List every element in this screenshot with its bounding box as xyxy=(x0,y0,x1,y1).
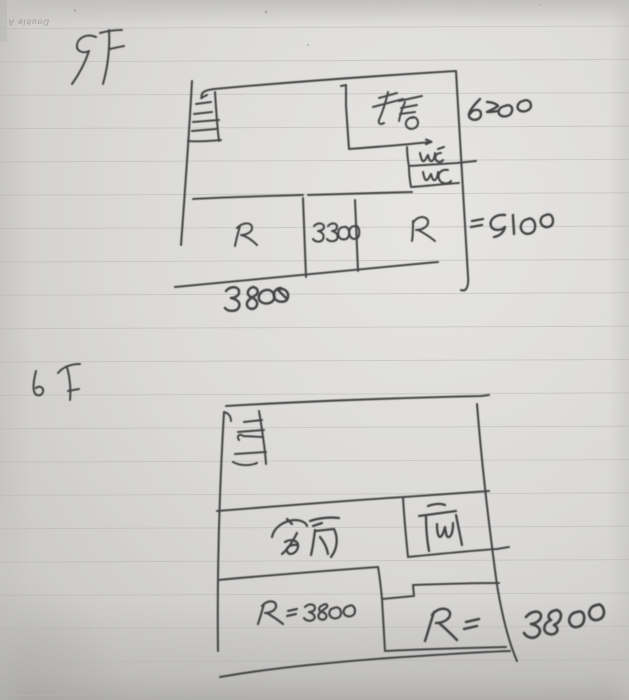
svg-text:Double A: Double A xyxy=(8,18,49,27)
